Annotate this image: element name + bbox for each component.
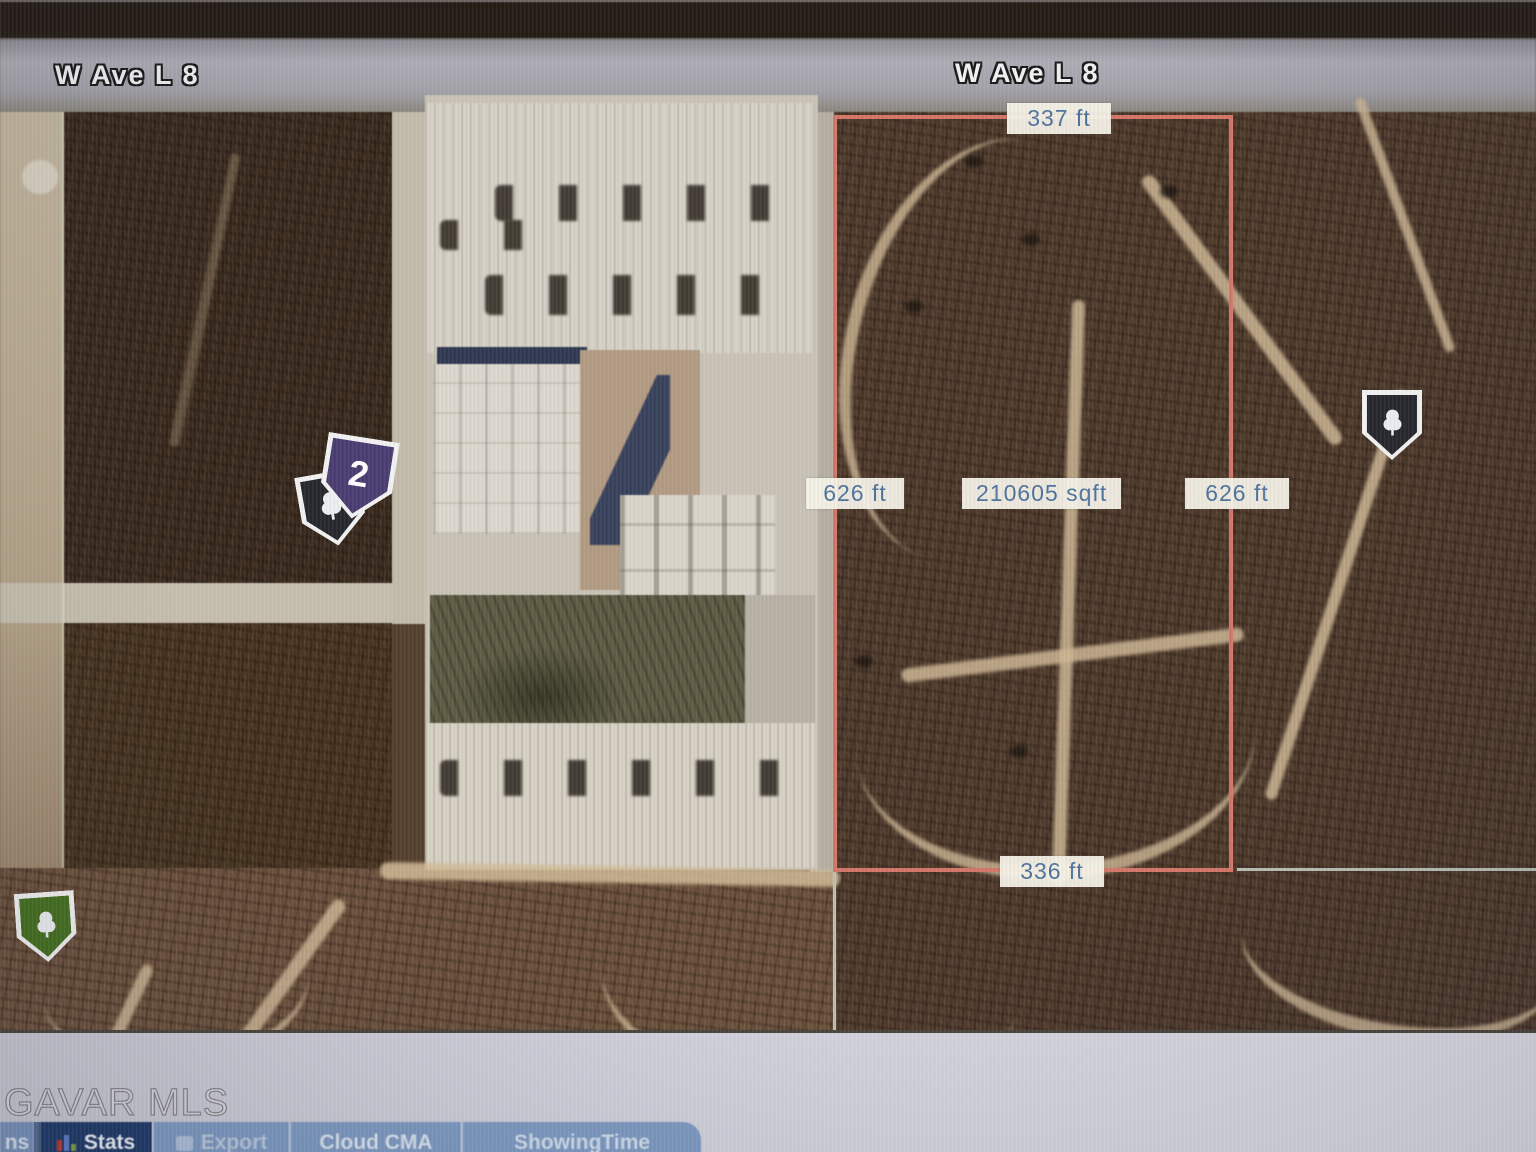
parcel-area-label: 210605 sqft [962,478,1121,509]
showingtime-button[interactable]: ShowingTime [461,1122,701,1152]
barn-openings-row [440,220,535,250]
barn-openings-row [485,275,800,315]
tree-icon [29,905,63,944]
map-canvas[interactable]: W Ave L 8 W Ave L 8 337 ft 626 ft 210605… [0,0,1536,1033]
road-left-horizontal [0,583,392,623]
export-button-label: Export [201,1131,268,1152]
stats-button-label: Stats [84,1131,135,1152]
stats-button[interactable]: Stats [40,1122,152,1152]
export-button[interactable]: Export [152,1122,289,1152]
cloud-cma-button[interactable]: Cloud CMA [289,1122,461,1152]
tree-icon [1377,404,1408,441]
survey-line-south [833,872,836,1030]
showingtime-button-label: ShowingTime [514,1131,650,1152]
bottom-toolbar: ns Stats Export Cloud CMA ShowingTime [0,1122,701,1152]
blue-roof-section [437,347,587,364]
barn-openings-row [495,185,800,221]
parcel-left-length-label: 626 ft [806,478,904,509]
street-label-w-ave-l8-right: W Ave L 8 [955,58,1100,89]
white-building [433,364,591,534]
partial-button[interactable]: ns [0,1122,34,1152]
street-label-w-ave-l8-left: W Ave L 8 [55,60,200,91]
driveway-vertical [392,112,428,624]
bar-chart-icon [57,1135,76,1151]
parcel-right-length-label: 626 ft [1185,478,1289,509]
barn-openings-row [440,760,800,796]
parcel-top-length-label: 337 ft [1007,103,1111,134]
mls-watermark: GAVAR MLS [4,1082,229,1125]
aerial-imagery [0,0,1536,1030]
survey-line-east [1237,868,1536,871]
cloud-cma-button-label: Cloud CMA [319,1131,432,1152]
cluster-count: 2 [346,451,372,496]
farm-facility [425,95,818,870]
terrain-feature-circle [22,160,58,194]
parcel-bottom-length-label: 336 ft [1000,856,1104,887]
export-icon [176,1136,193,1151]
screen-photo: W Ave L 8 W Ave L 8 337 ft 626 ft 210605… [0,0,1536,1152]
terrain-top-treeline [0,0,1536,40]
